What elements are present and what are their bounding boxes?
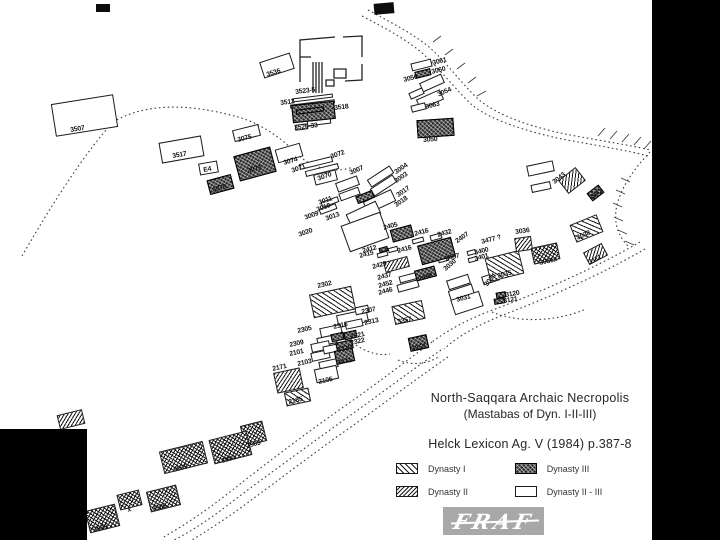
tomb xyxy=(159,135,205,163)
tomb xyxy=(233,147,276,182)
tomb-label: 3036x xyxy=(539,257,558,267)
tomb-label: 2305 xyxy=(297,326,312,336)
enclosure-outline xyxy=(334,69,346,78)
tomb-label: 3536 xyxy=(266,69,282,80)
tomb-label: 3121 xyxy=(503,297,518,306)
map-title: North-Saqqara Archaic Necropolis xyxy=(406,391,654,405)
enclosure-outline xyxy=(343,36,362,57)
tomb-label: 3505 xyxy=(173,465,189,475)
legend-label: Dynasty II - III xyxy=(547,487,603,497)
tomb-label: 3500 xyxy=(93,525,109,535)
tomb-label: 2416 xyxy=(397,245,413,255)
legend-label: Dynasty III xyxy=(547,464,590,474)
tomb xyxy=(526,160,555,176)
escarpment-dotted-line xyxy=(362,16,648,156)
legend-swatch-outline xyxy=(515,486,537,497)
tomb-label: 3020 xyxy=(298,228,314,239)
tomb-label: 2498 xyxy=(418,273,434,283)
tomb-label: 3518 xyxy=(334,104,349,112)
tomb-label: 2313 xyxy=(364,318,379,328)
tomb xyxy=(57,409,86,430)
tomb-label: 3526-33 xyxy=(294,123,318,133)
tomb xyxy=(96,4,110,12)
tomb-label: 3013 xyxy=(325,212,341,223)
legend-swatch-dark xyxy=(515,463,537,474)
tomb-label: 3018 xyxy=(394,196,410,210)
watermark: FRAF xyxy=(443,507,544,535)
legend-label: Dynasty I xyxy=(428,464,466,474)
tomb-label: 3072 xyxy=(330,150,346,161)
legend-item: Dynasty II - III xyxy=(515,485,631,498)
tomb-label: 2105 xyxy=(318,377,333,387)
bottom-left-black-corner xyxy=(0,429,87,540)
legend-label: Dynasty II xyxy=(428,487,468,497)
tomb-label: E4 xyxy=(203,167,212,175)
legend-swatch-h2 xyxy=(396,486,418,497)
enclosure-outline xyxy=(300,37,335,82)
tomb-label: x xyxy=(127,507,132,514)
legend-item: Dynasty II xyxy=(396,485,497,498)
map-stage: 3536350735173075E43073307630743071307230… xyxy=(0,0,720,540)
tomb-label: 2407 xyxy=(455,232,471,246)
tomb-label: 3063 xyxy=(425,102,441,112)
tomb-label: 3506 xyxy=(152,504,168,514)
tomb-label: 2101 xyxy=(289,349,304,359)
tomb-label: 3050 xyxy=(423,137,438,145)
tomb-label: 3507 xyxy=(70,126,85,135)
map-subtitle: (Mastabas of Dyn. I-II-III) xyxy=(406,407,654,421)
tomb-label: 2322 xyxy=(350,338,365,348)
tomb-label: 2316 xyxy=(333,322,348,332)
tomb-label: 3503 xyxy=(246,441,262,451)
slide: { "slide": { "title_line1": "North-Saqqa… xyxy=(0,0,720,540)
tomb xyxy=(530,181,551,193)
slope-hatching xyxy=(613,178,634,245)
legend-swatch-h1 xyxy=(396,463,418,474)
escarpment-dotted-line xyxy=(356,345,390,355)
tomb-label: 3358 xyxy=(411,344,426,354)
tomb-label: 3357 xyxy=(397,317,412,327)
tomb-label: 2415 xyxy=(359,250,375,260)
legend-item: Dynasty III xyxy=(515,462,631,475)
enclosure-outline xyxy=(345,64,362,81)
watermark-text: FRAF xyxy=(451,509,537,534)
escarpment-dotted-line xyxy=(492,309,586,320)
tomb-label: 3504 xyxy=(221,456,237,466)
tomb-label: 3076 xyxy=(212,184,228,194)
tomb-label: 2103 xyxy=(297,359,312,369)
escarpment-dotted-line xyxy=(616,152,650,246)
tomb xyxy=(383,256,410,273)
tomb-label: 3477 ? xyxy=(481,235,502,247)
tomb-label: 3056 xyxy=(403,75,419,85)
enclosure-outline xyxy=(326,80,334,86)
map-lines-layer xyxy=(0,0,720,540)
tomb xyxy=(374,2,395,15)
tomb-label: 2446 xyxy=(378,287,394,297)
tomb-label: 3471 xyxy=(337,358,352,368)
tomb-label: 3009 xyxy=(304,211,320,222)
map-reference: Helck Lexicon Ag. V (1984) p.387-8 xyxy=(406,437,654,451)
legend: Dynasty IDynasty IIDynasty IIIDynasty II… xyxy=(396,462,631,498)
tomb-label: 3075 xyxy=(237,135,253,145)
tomb-label: 2307 xyxy=(361,307,376,317)
slope-hatching xyxy=(598,128,651,149)
escarpment-dotted-line xyxy=(398,356,440,363)
escarpment-dotted-line xyxy=(22,122,113,256)
tomb-label: 3035 xyxy=(497,271,513,281)
tomb-label: 2185 xyxy=(288,397,303,407)
legend-item: Dynasty I xyxy=(396,462,497,475)
right-black-bar xyxy=(652,0,720,540)
title-block: North-Saqqara Archaic Necropolis (Mastab… xyxy=(406,391,654,451)
